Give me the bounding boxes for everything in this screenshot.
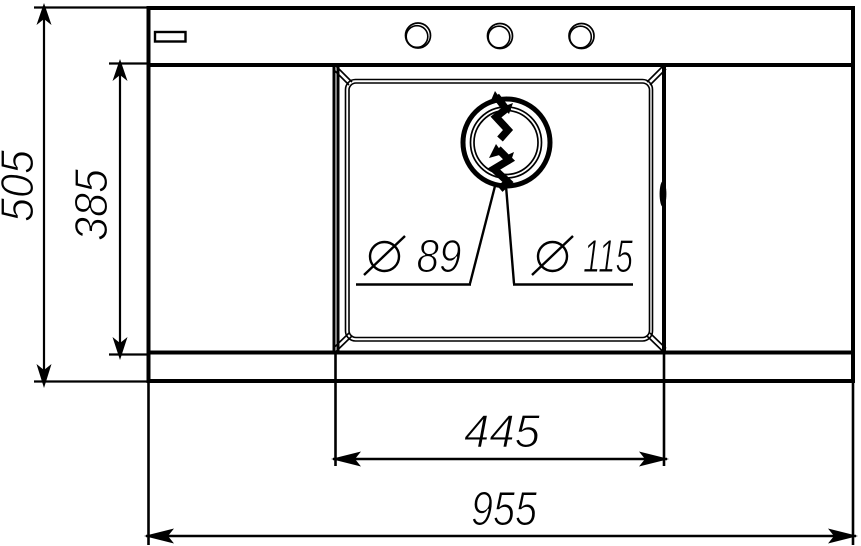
- svg-text:955: 955: [471, 483, 537, 536]
- svg-text:385: 385: [65, 169, 117, 241]
- svg-text:445: 445: [464, 405, 540, 457]
- svg-text:115: 115: [583, 230, 633, 282]
- svg-text:89: 89: [417, 230, 462, 282]
- svg-text:505: 505: [0, 150, 43, 222]
